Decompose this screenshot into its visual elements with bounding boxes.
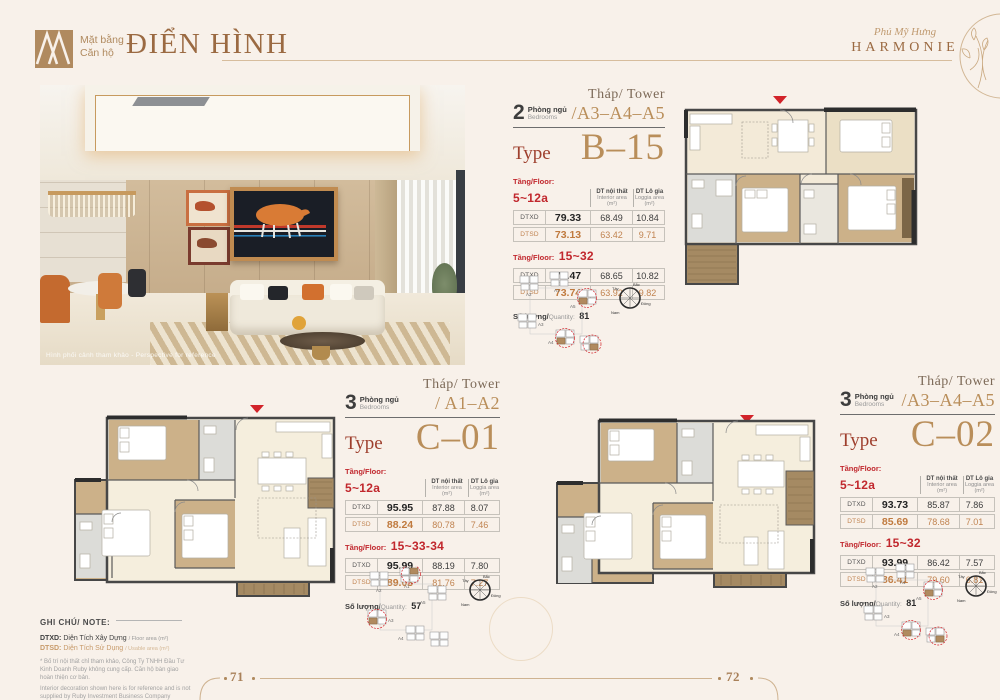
area-value: 73.13 — [546, 228, 591, 241]
svg-text:Tây: Tây — [612, 286, 619, 291]
floor-label: Tầng/Floor: — [513, 177, 554, 186]
svg-text:A5: A5 — [916, 596, 922, 601]
footer-corner-right — [756, 674, 786, 700]
dining-chair — [98, 273, 122, 309]
area-value: 79.33 — [546, 211, 591, 224]
type-name: C–02 — [911, 416, 995, 453]
brand-script: Phú Mỹ Hưng — [850, 26, 960, 38]
page-title: ĐIỂN HÌNH — [126, 28, 289, 61]
cushion — [330, 284, 352, 300]
footer-dot — [718, 677, 721, 680]
section-subtitle-line2: Căn hộ — [80, 47, 124, 60]
floral-emblem-icon — [958, 10, 1000, 102]
horse-painting — [230, 187, 338, 261]
compass-icon: Bắc Tây Nam Đông — [957, 570, 997, 603]
svg-text:A5: A5 — [420, 600, 426, 605]
bedrooms-label-vi: Phòng ngủ — [528, 106, 567, 114]
siteplan-c01: A2 A1 A5 A3 A4 Bắc Tây Nam Đông — [356, 566, 506, 662]
header-divider — [222, 60, 952, 61]
table-row: DTXD 79.33 68.49 10.84 — [513, 210, 665, 225]
svg-text:A4: A4 — [548, 340, 554, 345]
svg-text:A3: A3 — [538, 322, 544, 327]
notes-block: GHI CHÚ/ NOTE: DTXD: Diện Tích Xây Dựng … — [40, 612, 208, 700]
area-value: 63.42 — [591, 228, 633, 241]
disclaimer-en: Interior decoration shown here is for re… — [40, 685, 192, 700]
footer-dot — [252, 677, 255, 680]
entrance-marker-icon — [250, 405, 264, 413]
table-row: DTSD 88.24 80.78 7.46 — [345, 517, 500, 532]
dining-chair — [128, 269, 146, 297]
svg-text:A1: A1 — [554, 288, 560, 293]
svg-text:A1: A1 — [404, 584, 410, 589]
tower-label: Tháp/ Tower — [572, 88, 666, 102]
tower-names: / A1–A2 — [423, 394, 500, 412]
table-row: DTXD 95.95 87.88 8.07 — [345, 500, 500, 515]
svg-text:Tây: Tây — [958, 574, 965, 579]
note-title-rule — [116, 620, 182, 621]
brand-block: Phú Mỹ Hưng HARMONIE — [850, 26, 960, 56]
note-title: GHI CHÚ/ NOTE: — [40, 618, 110, 627]
brochure-page: Mặt bằng Căn hộ ĐIỂN HÌNH Phú Mỹ Hưng HA… — [0, 0, 1000, 700]
compass-icon: Bắc Tây Nam Đông — [461, 574, 501, 607]
svg-text:A5: A5 — [570, 304, 576, 309]
svg-text:Tây: Tây — [462, 578, 469, 583]
disclaimer-vi: * Bố trí nội thất chỉ tham khảo, Công Ty… — [40, 658, 192, 682]
bedroom-count: 2 — [513, 105, 525, 122]
floorplan-c02 — [542, 413, 832, 625]
svg-text:A3: A3 — [884, 614, 890, 619]
area-value: 9.71 — [633, 228, 662, 241]
type-name: C–01 — [416, 419, 500, 456]
svg-text:Nam: Nam — [611, 310, 620, 315]
photo-caption: Hình phối cảnh tham khảo - Perspective f… — [46, 352, 216, 359]
dining-chair — [40, 275, 70, 323]
unit-header: 3 Phòng ngủ Bedrooms Tháp/ Tower / A1–A2 — [345, 378, 500, 412]
entrance-marker-icon — [773, 96, 787, 104]
footer-corner-left — [192, 674, 222, 700]
col-header-loggia: DT Lô gia Loggia area (m²) — [633, 189, 665, 207]
area-value: 10.84 — [633, 211, 662, 224]
small-artwork — [186, 190, 230, 226]
bedroom-count: 3 — [840, 392, 852, 409]
svg-text:Đông: Đông — [987, 589, 997, 594]
table-row: DTSD 85.69 78.68 7.01 — [840, 514, 995, 529]
unit-header: 2 Phòng ngủ Bedrooms Tháp/ Tower /A3–A4–… — [513, 88, 665, 122]
cushion — [240, 284, 264, 300]
footer-dot — [224, 677, 227, 680]
flowers — [292, 316, 306, 330]
note-dtsd: DTSD: Diện Tích Sử Dụng / Usable area (m… — [40, 644, 208, 653]
siteplan-b15: A2 A1 A5 A3 A4 Bắc Tây Nam Đông — [506, 270, 656, 358]
page-number-right: 72 — [726, 669, 740, 685]
footer-rule — [260, 678, 712, 679]
apartment-photo: Hình phối cảnh tham khảo - Perspective f… — [40, 85, 465, 365]
svg-text:A4: A4 — [894, 632, 900, 637]
svg-text:A1: A1 — [900, 580, 906, 585]
footer-dot — [750, 677, 753, 680]
floor-range: 5~12a — [513, 191, 548, 205]
table-row: DTXD 93.73 85.87 7.86 — [840, 497, 995, 512]
svg-text:A4: A4 — [398, 636, 404, 641]
svg-text:A2: A2 — [526, 292, 532, 297]
table-row: DTSD 73.13 63.42 9.71 — [513, 227, 665, 242]
svg-text:A3: A3 — [388, 618, 394, 623]
area-value: 68.49 — [591, 211, 633, 224]
logo-mark-icon — [35, 30, 73, 68]
ac-vent — [132, 97, 210, 106]
svg-text:Nam: Nam — [957, 598, 966, 603]
svg-text:Đông: Đông — [641, 301, 651, 306]
brand-name: HARMONIE — [850, 40, 960, 56]
svg-text:A2: A2 — [872, 584, 878, 589]
svg-text:Đông: Đông — [491, 593, 501, 598]
type-name: B–15 — [581, 129, 665, 166]
side-table — [206, 293, 228, 331]
geometric-logo-icon — [35, 30, 73, 68]
section-subtitle: Mặt bằng Căn hộ — [80, 34, 124, 59]
decorative-circle — [489, 597, 553, 661]
small-artwork — [188, 227, 230, 265]
cushion — [302, 284, 324, 300]
bedrooms-label-en: Bedrooms — [528, 114, 567, 121]
tower-names: /A3–A4–A5 — [902, 391, 996, 409]
svg-text:Nam: Nam — [461, 602, 470, 607]
cushion — [268, 286, 288, 300]
svg-text:Bắc: Bắc — [633, 282, 640, 287]
floorplan-c01 — [62, 402, 348, 620]
unit-header: 3 Phòng ngủ Bedrooms Tháp/ Tower /A3–A4–… — [840, 375, 995, 409]
section-subtitle-line1: Mặt bằng — [80, 34, 124, 47]
photo-ceiling — [40, 85, 465, 180]
col-header-interior: DT nội thất Interior area (m²) — [590, 189, 633, 207]
svg-text:A2: A2 — [376, 588, 382, 593]
type-label: Type — [513, 143, 551, 165]
siteplan-c02: A2 A1 A5 A3 A4 Bắc Tây Nam Đông — [852, 562, 1000, 658]
svg-text:Bắc: Bắc — [483, 574, 490, 579]
floorplan-b15 — [676, 94, 934, 290]
cushion — [354, 286, 374, 300]
compass-icon: Bắc Tây Nam Đông — [611, 282, 651, 315]
floor-range: 15~32 — [559, 249, 594, 263]
note-dtxd: DTXD: Diện Tích Xây Dựng / Floor area (m… — [40, 634, 208, 643]
page-number-left: 71 — [230, 669, 244, 685]
tower-names: /A3–A4–A5 — [572, 104, 666, 122]
svg-text:Bắc: Bắc — [979, 570, 986, 575]
